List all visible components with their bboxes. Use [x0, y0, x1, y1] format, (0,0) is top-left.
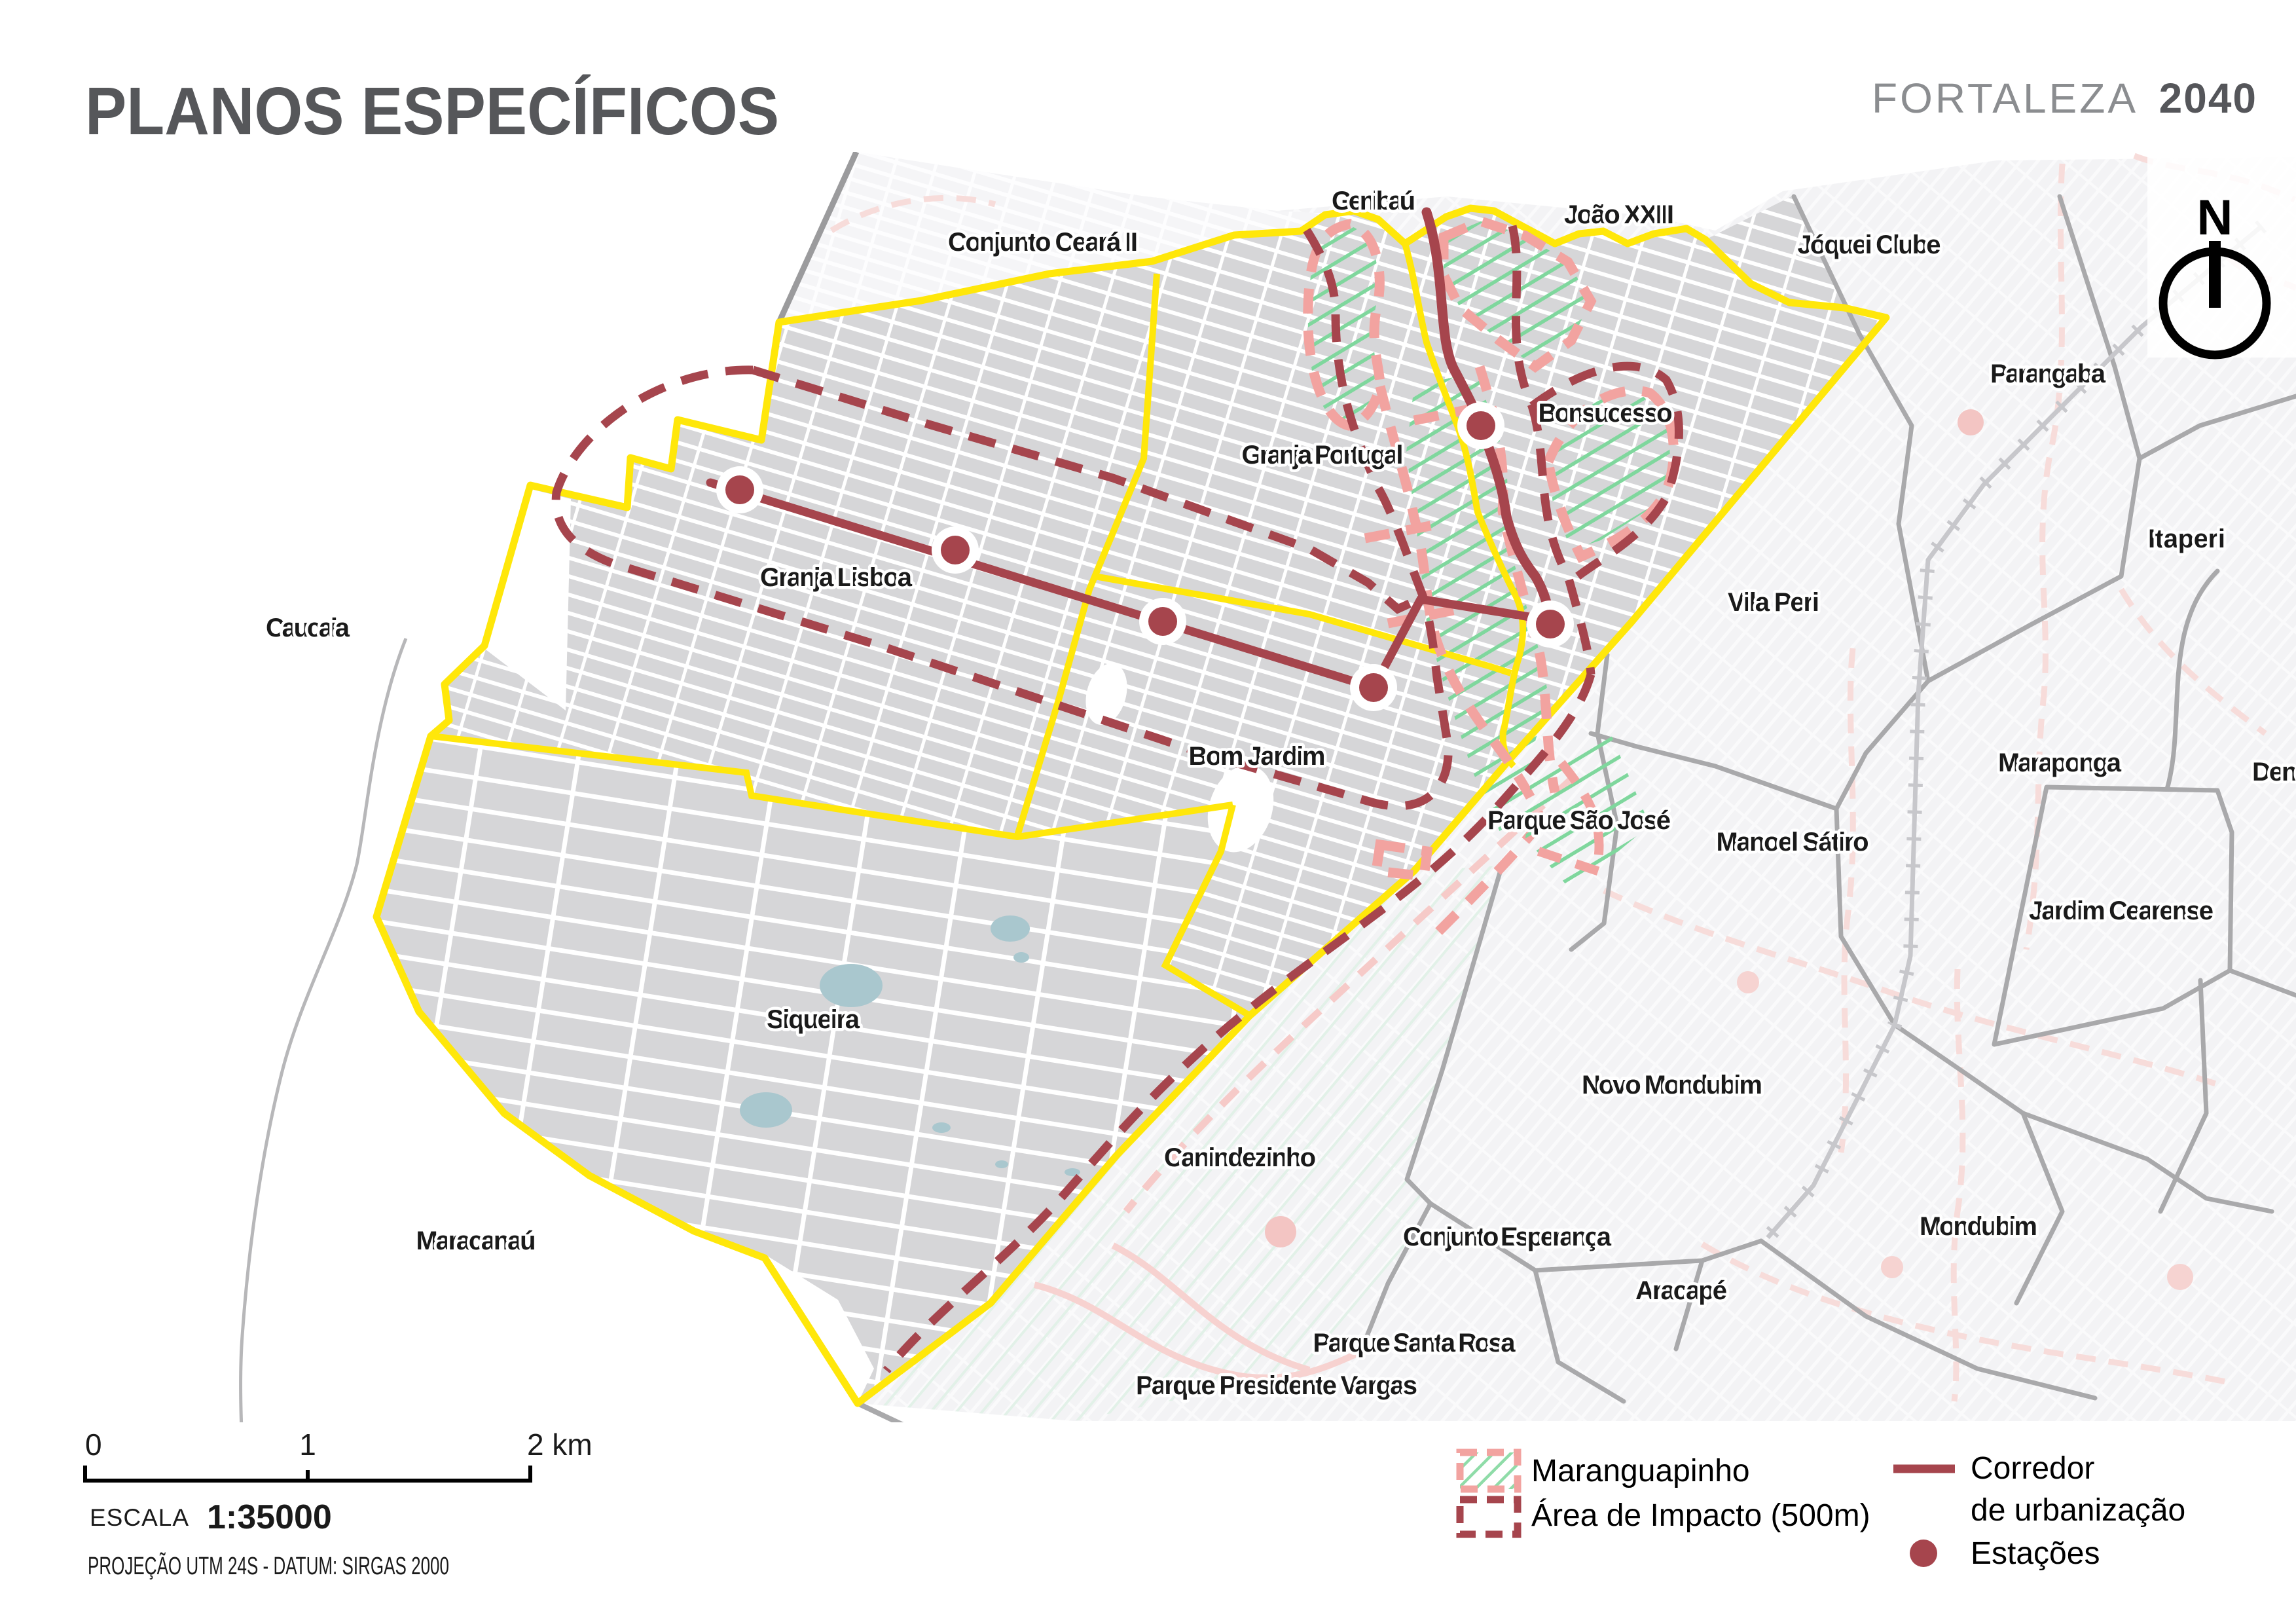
svg-text:Itaperi: Itaperi: [2148, 525, 2225, 553]
svg-text:Conjunto Esperança: Conjunto Esperança: [1403, 1223, 1612, 1251]
svg-text:Granja Lisboa: Granja Lisboa: [760, 563, 913, 592]
svg-text:Novo Mondubim: Novo Mondubim: [1582, 1071, 1762, 1099]
svg-text:Aracapé: Aracapé: [1635, 1276, 1727, 1305]
svg-text:Parque São José: Parque São José: [1487, 806, 1671, 835]
svg-text:Maracanaú: Maracanaú: [416, 1227, 536, 1255]
svg-text:Jardim Cearense: Jardim Cearense: [2029, 896, 2214, 925]
svg-text:Maranguapinho: Maranguapinho: [1531, 1454, 1750, 1488]
svg-text:2 km: 2 km: [527, 1428, 592, 1462]
svg-text:Canindezinho: Canindezinho: [1164, 1143, 1316, 1172]
svg-text:N: N: [2197, 190, 2233, 246]
svg-text:1:35000: 1:35000: [207, 1498, 332, 1536]
svg-text:Estações: Estações: [1971, 1536, 2100, 1571]
svg-text:FORTALEZA: FORTALEZA: [1872, 75, 2138, 122]
svg-text:Conjunto Ceará II: Conjunto Ceará II: [948, 228, 1138, 257]
svg-text:PROJEÇÃO UTM 24S - DATUM: SIRG: PROJEÇÃO UTM 24S - DATUM: SIRGAS 2000: [88, 1552, 449, 1580]
svg-text:Genibaú: Genibaú: [1332, 187, 1415, 215]
svg-text:Parangaba: Parangaba: [1990, 360, 2106, 388]
svg-text:Bom Jardim: Bom Jardim: [1189, 742, 1326, 771]
svg-text:Manoel Sátiro: Manoel Sátiro: [1717, 828, 1869, 857]
svg-text:Área de Impacto (500m): Área de Impacto (500m): [1531, 1498, 1870, 1533]
svg-text:ESCALA: ESCALA: [90, 1504, 189, 1531]
svg-text:João XXIII: João XXIII: [1564, 200, 1674, 229]
svg-text:de urbanização: de urbanização: [1971, 1493, 2185, 1528]
svg-text:Maraponga: Maraponga: [1998, 748, 2122, 777]
svg-text:Parque Presidente Vargas: Parque Presidente Vargas: [1136, 1371, 1417, 1400]
svg-text:Corredor: Corredor: [1971, 1451, 2094, 1486]
svg-text:Dendê: Dendê: [2252, 758, 2296, 786]
svg-text:Parque Santa Rosa: Parque Santa Rosa: [1313, 1329, 1516, 1357]
svg-text:1: 1: [299, 1428, 316, 1462]
svg-text:PLANOS ESPECÍFICOS: PLANOS ESPECÍFICOS: [85, 73, 779, 149]
svg-text:Caucaia: Caucaia: [266, 614, 350, 642]
svg-text:Bonsucesso: Bonsucesso: [1539, 399, 1673, 428]
svg-text:Siqueira: Siqueira: [767, 1005, 860, 1034]
svg-text:Vila Peri: Vila Peri: [1728, 588, 1819, 617]
svg-text:Granja Portugal: Granja Portugal: [1242, 441, 1404, 470]
svg-text:Jóquei Clube: Jóquei Clube: [1798, 231, 1941, 259]
svg-text:Mondubim: Mondubim: [1920, 1212, 2037, 1241]
svg-text:0: 0: [85, 1428, 102, 1462]
svg-text:2040: 2040: [2159, 75, 2257, 122]
